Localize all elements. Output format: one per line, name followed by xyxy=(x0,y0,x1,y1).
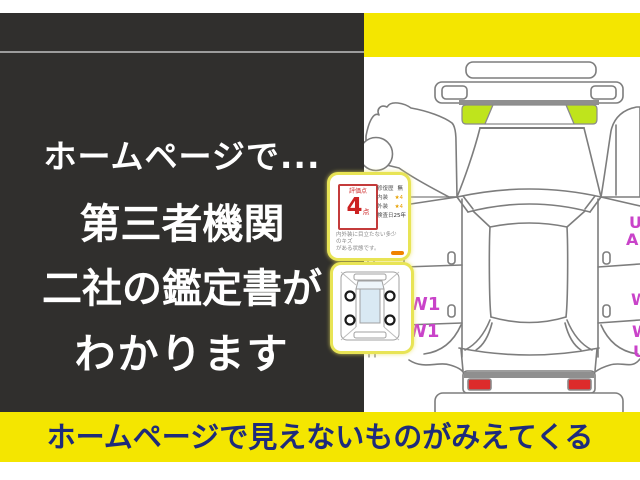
headline-line4: わかります xyxy=(0,332,364,377)
headline-line2: 第三者機関 xyxy=(0,202,364,247)
score-unit: 点 xyxy=(363,208,370,216)
ad-slide: ホームページで... 第三者機関 二社の鑑定書が わかります xyxy=(0,0,640,480)
door-handle-left-front xyxy=(448,252,455,264)
tail-light-right xyxy=(568,379,591,390)
certificate-note: 内外装に目立たない多少のキズ がある状態です。 xyxy=(336,232,400,253)
tail-light-left xyxy=(468,379,491,390)
condition-diagram-card xyxy=(330,262,414,354)
appraisal-score-card: 評価点 4点 修復歴 無 内装 ★4 外装 ★4 検査日 25年 内外装に目立た… xyxy=(327,172,411,261)
cert-row-exterior: 外装 ★4 xyxy=(377,203,403,212)
front-bumper-top xyxy=(466,62,596,78)
windshield-base xyxy=(485,105,574,124)
mini-car-top-view xyxy=(338,269,402,343)
score-value: 4 xyxy=(346,194,362,220)
rear-bumper-lower xyxy=(435,393,623,412)
headlight-left xyxy=(442,86,467,99)
damage-mark-u-right-2: U xyxy=(633,342,640,361)
damage-mark-w-right-1: W xyxy=(631,290,640,309)
front-fender-right xyxy=(601,107,640,197)
damage-mark-a-right-top: A xyxy=(626,230,638,249)
front-wheel-left xyxy=(364,138,393,171)
roof xyxy=(490,223,567,227)
score-box: 評価点 4点 xyxy=(338,184,378,230)
star-icon: ★4 xyxy=(395,194,403,203)
door-handle-right-rear xyxy=(603,305,610,317)
cert-row-interior: 内装 ★4 xyxy=(377,194,403,203)
certificate-brand-mark xyxy=(391,251,404,255)
damage-mark-w-right-2: W xyxy=(632,322,640,341)
headline-line1: ホームページで... xyxy=(0,139,364,175)
left-text-panel: ホームページで... 第三者機関 二社の鑑定書が わかります xyxy=(0,13,364,412)
rear-fender-left xyxy=(409,360,463,372)
star-icon: ★4 xyxy=(395,203,403,212)
hood-edge-right xyxy=(584,128,601,197)
banner-text: ホームページで見えないものがみえてくる xyxy=(0,412,640,462)
bottom-banner: ホームページで見えないものがみえてくる xyxy=(0,412,640,462)
cert-row-inspection-date: 検査日 25年 xyxy=(377,212,403,221)
hood-edge-left xyxy=(457,128,480,197)
door-handle-left-rear xyxy=(448,305,455,317)
top-yellow-bar xyxy=(364,13,640,57)
headlight-right xyxy=(591,86,616,99)
door-handle-right-front xyxy=(603,252,610,264)
panel-divider-line xyxy=(0,51,364,53)
cert-row-repair-history: 修復歴 無 xyxy=(377,185,403,194)
certificate-rows: 修復歴 無 内装 ★4 外装 ★4 検査日 25年 xyxy=(377,185,403,221)
cowl-bar xyxy=(459,100,599,105)
headline-line3: 二社の鑑定書が xyxy=(0,267,364,311)
